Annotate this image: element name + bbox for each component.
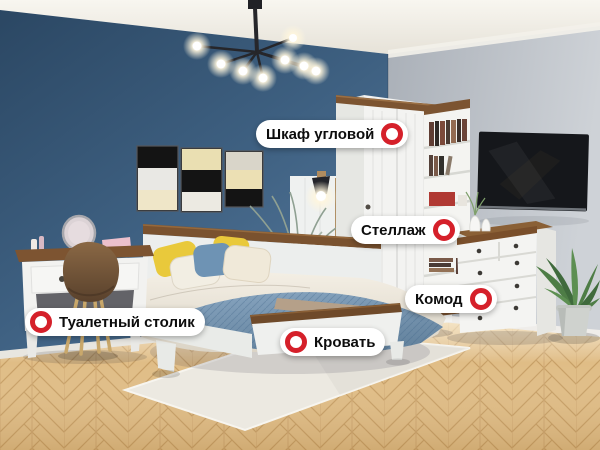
hotspot-marker-icon[interactable] — [30, 311, 52, 333]
hotspot-marker-icon[interactable] — [433, 219, 455, 241]
hotspot-marker-icon[interactable] — [285, 331, 307, 353]
hotspot-label: Кровать — [314, 335, 375, 350]
hotspot-corner-wardrobe[interactable]: Шкаф угловой — [256, 120, 408, 148]
wall-art — [137, 146, 263, 212]
hotspot-chest[interactable]: Комод — [405, 285, 497, 313]
hotspot-dressing-table[interactable]: Туалетный столик — [25, 308, 205, 336]
hotspot-marker-icon[interactable] — [381, 123, 403, 145]
product-hotspot-image: Шкаф угловой Стеллаж Комод Кровать Туале… — [0, 0, 600, 450]
hotspot-shelving[interactable]: Стеллаж — [351, 216, 460, 244]
hotspot-marker-icon[interactable] — [470, 288, 492, 310]
hotspot-label: Стеллаж — [361, 223, 426, 238]
hotspot-label: Туалетный столик — [59, 315, 195, 330]
hotspot-label: Комод — [415, 292, 463, 307]
bedroom-scene — [0, 0, 600, 450]
hotspot-bed[interactable]: Кровать — [280, 328, 385, 356]
hotspot-label: Шкаф угловой — [266, 127, 374, 142]
